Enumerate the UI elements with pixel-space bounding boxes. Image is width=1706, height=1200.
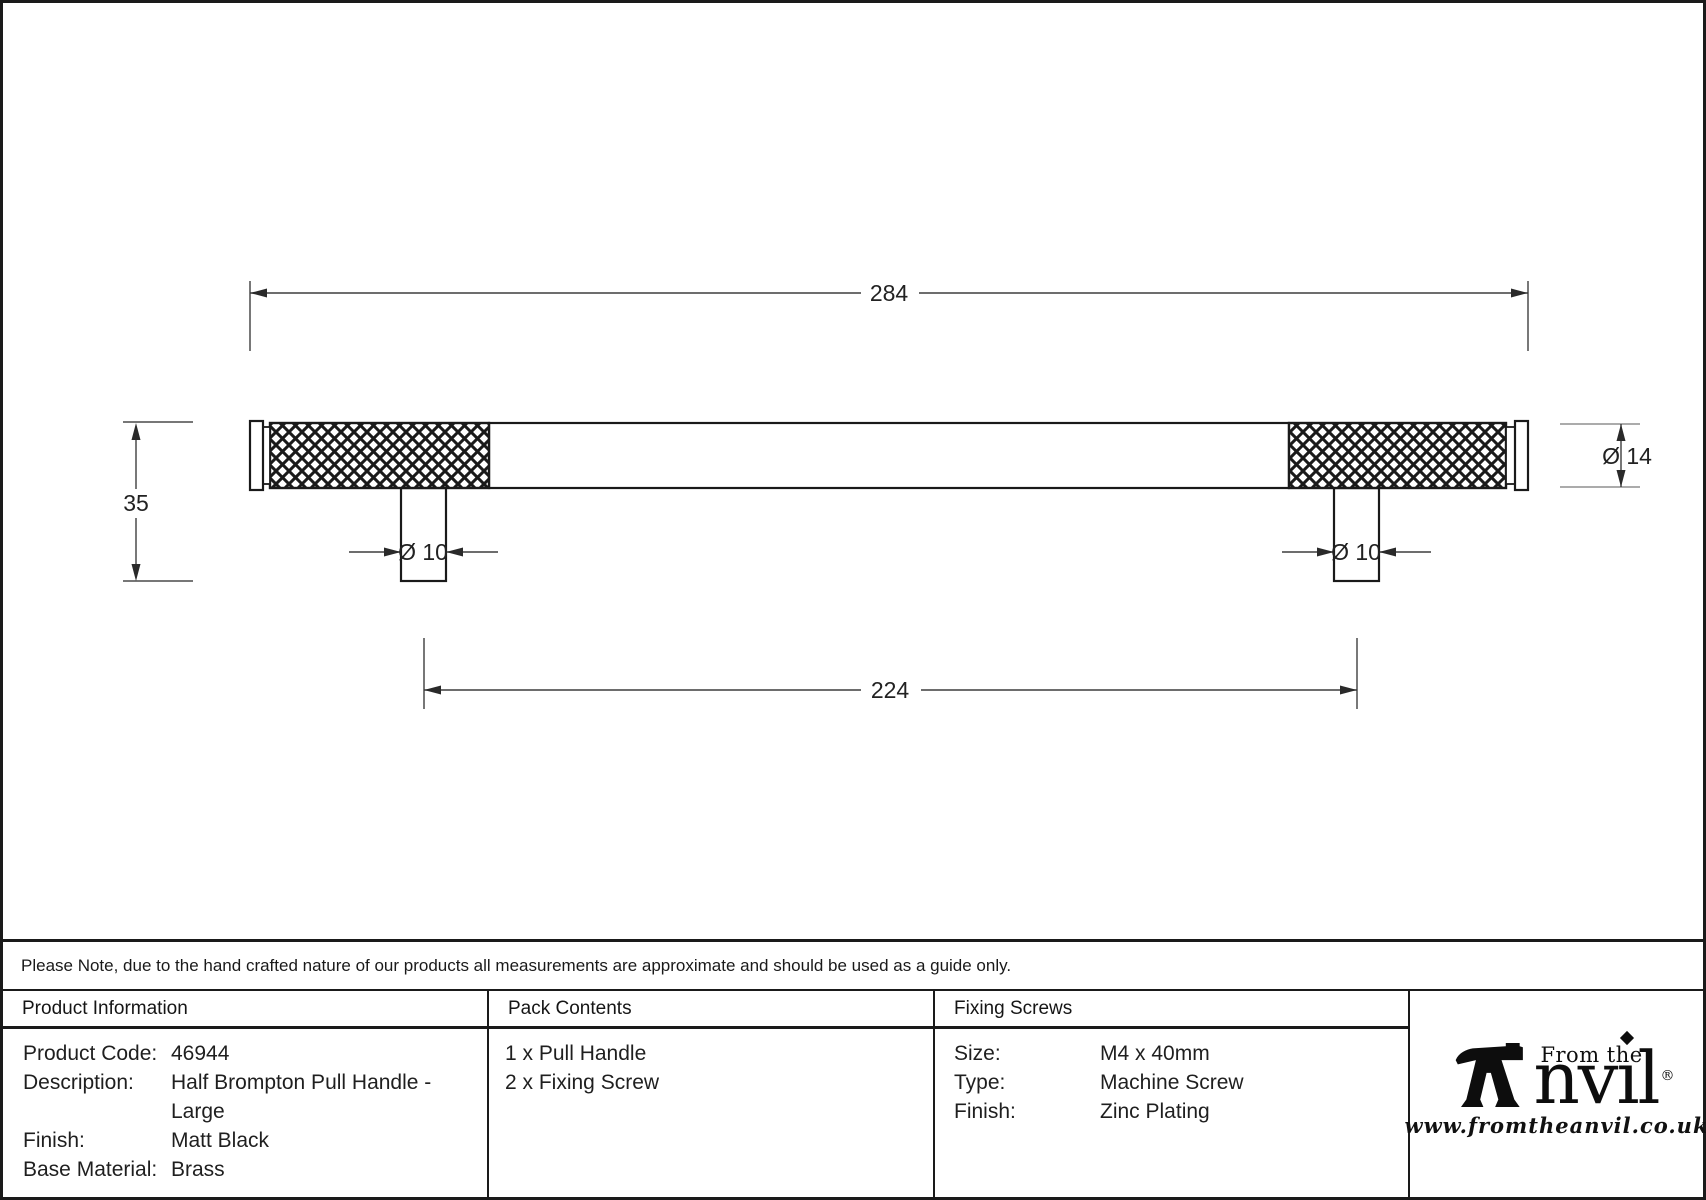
pack-contents-column: Pack Contents 1 x Pull Handle 2 x Fixing… — [487, 991, 933, 1197]
right-stem — [1334, 488, 1379, 581]
knurled-section-left — [270, 423, 489, 488]
brand-letter-l: l — [1638, 1036, 1659, 1120]
screw-size-label: Size: — [935, 1039, 1100, 1068]
base-material-value: Brass — [171, 1155, 487, 1184]
dimension-overall-length: 284 — [250, 280, 1528, 351]
left-stem — [401, 488, 446, 581]
screw-type-value: Machine Screw — [1100, 1068, 1408, 1097]
table-row: Finish: Zinc Plating — [935, 1097, 1408, 1126]
measurement-note: Please Note, due to the hand crafted nat… — [3, 939, 1703, 991]
spec-sheet-page: 284 35 — [0, 0, 1706, 1200]
registered-trademark-symbol: ® — [1661, 1047, 1675, 1105]
fixing-screws-header: Fixing Screws — [935, 991, 1408, 1029]
centre-bar — [489, 423, 1289, 488]
pack-contents-header: Pack Contents — [489, 991, 933, 1029]
technical-drawing-area: 284 35 — [3, 3, 1703, 939]
product-code-label: Product Code: — [3, 1039, 171, 1068]
dim-label-bar-diameter: Ø 14 — [1602, 443, 1652, 469]
table-row: Description: Half Brompton Pull Handle -… — [3, 1068, 487, 1126]
anvil-icon — [1454, 1043, 1532, 1107]
table-row: Finish: Matt Black — [3, 1126, 487, 1155]
spec-table: Product Information Product Code: 46944 … — [3, 991, 1703, 1197]
screw-size-value: M4 x 40mm — [1100, 1039, 1408, 1068]
dimension-fixing-centres: 224 — [424, 638, 1357, 709]
brand-letter-i: ı — [1616, 1049, 1637, 1107]
screw-finish-label: Finish: — [935, 1097, 1100, 1126]
brand-letters-nv: nv — [1533, 1036, 1616, 1120]
finish-value: Matt Black — [171, 1126, 487, 1155]
table-row: Product Code: 46944 — [3, 1039, 487, 1068]
finish-label: Finish: — [3, 1126, 171, 1155]
dimension-stem-diameter-left: Ø 10 — [349, 539, 498, 565]
table-row: Size: M4 x 40mm — [935, 1039, 1408, 1068]
knurled-section-right — [1289, 423, 1506, 488]
dim-label-fixing-centres: 224 — [871, 677, 910, 703]
right-connector — [1506, 427, 1515, 484]
table-row: Type: Machine Screw — [935, 1068, 1408, 1097]
dimension-stem-diameter-right: Ø 10 — [1282, 539, 1431, 565]
dimension-projection-height: 35 — [123, 422, 193, 581]
measurement-note-text: Please Note, due to the hand crafted nat… — [21, 956, 1011, 976]
dimension-bar-diameter: Ø 14 — [1560, 424, 1652, 487]
from-the-anvil-logo: From the nvıl® www.fromtheanvil.co.uk — [1410, 1041, 1703, 1138]
dim-label-overall-length: 284 — [870, 280, 909, 306]
brand-wordmark: nvıl® — [1533, 1049, 1658, 1107]
right-end-cap — [1515, 421, 1528, 490]
dim-label-stem-diameter-right: Ø 10 — [1331, 539, 1381, 565]
product-information-header: Product Information — [3, 991, 487, 1029]
dim-label-projection-height: 35 — [123, 490, 149, 516]
pack-item-fixing-screw: 2 x Fixing Screw — [489, 1068, 933, 1097]
fixing-screws-column: Fixing Screws Size: M4 x 40mm Type: Mach… — [933, 991, 1408, 1197]
description-label: Description: — [3, 1068, 171, 1126]
pack-item-pull-handle: 1 x Pull Handle — [489, 1039, 933, 1068]
product-information-column: Product Information Product Code: 46944 … — [3, 991, 487, 1197]
left-end-cap — [250, 421, 263, 490]
base-material-label: Base Material: — [3, 1155, 171, 1184]
pull-handle-drawing: 284 35 — [3, 3, 1703, 939]
description-value: Half Brompton Pull Handle - Large — [171, 1068, 487, 1126]
product-code-value: 46944 — [171, 1039, 487, 1068]
screw-type-label: Type: — [935, 1068, 1100, 1097]
screw-finish-value: Zinc Plating — [1100, 1097, 1408, 1126]
brand-logo-cell: From the nvıl® www.fromtheanvil.co.uk — [1408, 991, 1703, 1197]
dim-label-stem-diameter-left: Ø 10 — [398, 539, 448, 565]
table-row: Base Material: Brass — [3, 1155, 487, 1184]
